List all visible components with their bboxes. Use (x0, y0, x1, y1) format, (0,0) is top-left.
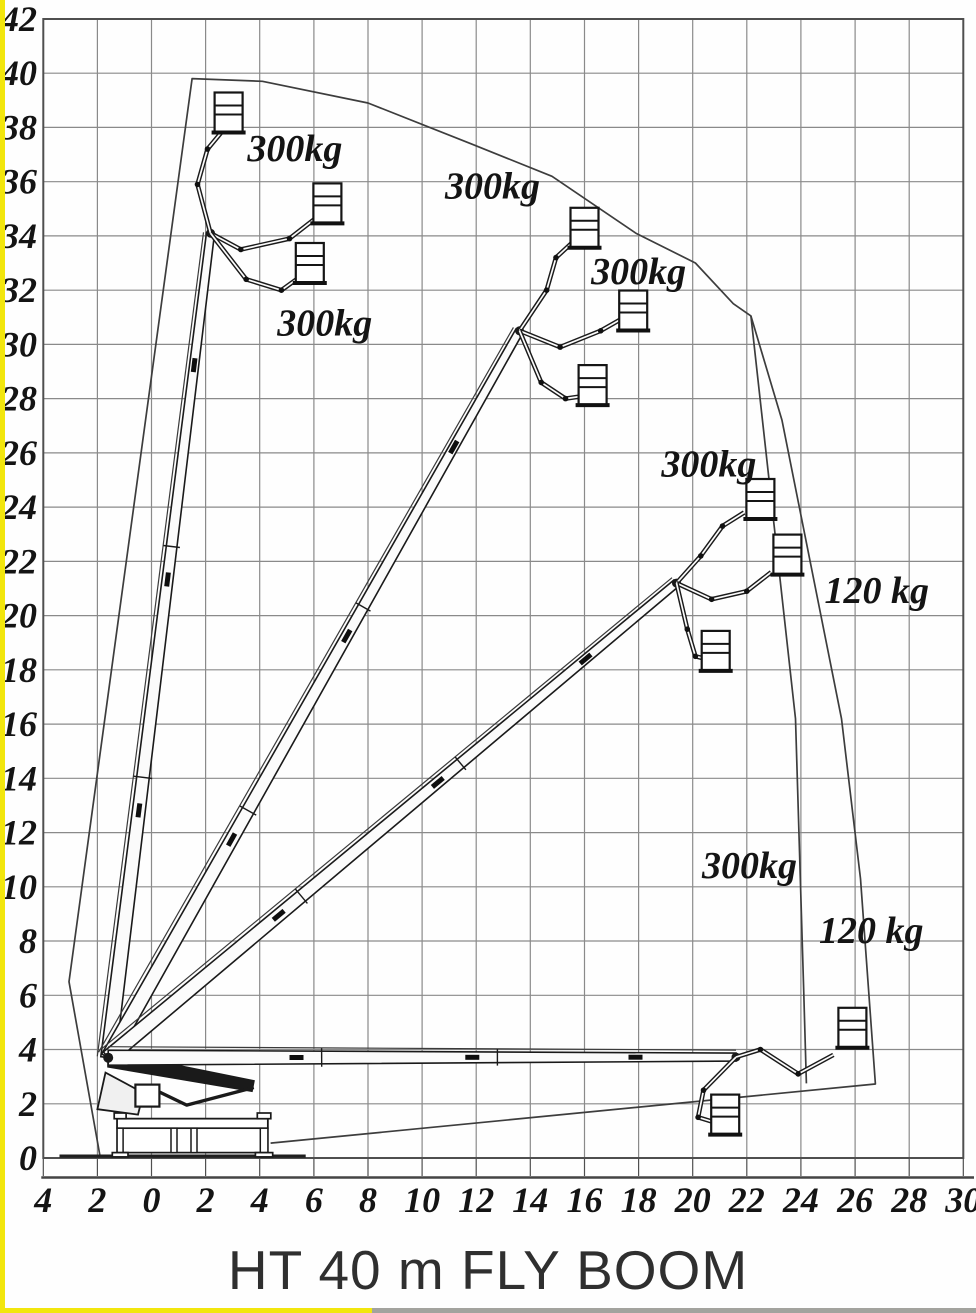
load-capacity-label: 300kg (276, 303, 372, 345)
y-axis-label: 18 (1, 650, 37, 690)
stowed-basket (135, 1085, 159, 1107)
platform-basket (619, 291, 647, 331)
jib-elbow-joint (709, 597, 715, 603)
x-axis-label: 22 (728, 1180, 765, 1220)
stowed-fly-jib (150, 1088, 254, 1106)
y-axis-label: 36 (0, 162, 37, 202)
y-axis-label: 0 (19, 1138, 37, 1178)
load-capacity-label: 300kg (590, 251, 686, 293)
page-edge-bottom-gray-strip (372, 1308, 976, 1313)
outrigger-post (171, 1128, 177, 1152)
telescopic-boom (103, 580, 679, 1063)
load-capacity-label: 120 kg (824, 570, 929, 612)
page-edge-bottom-yellow-strip (0, 1308, 372, 1313)
y-axis-label: 2 (18, 1084, 37, 1124)
outrigger-foot (112, 1153, 128, 1157)
outrigger-post (117, 1128, 123, 1152)
jib-elbow-joint (544, 287, 550, 293)
jib-elbow-joint (553, 255, 559, 261)
y-axis-label: 26 (0, 433, 37, 473)
x-axis-label: 28 (890, 1180, 927, 1220)
x-axis-label: 4 (33, 1180, 52, 1220)
y-axis-label: 40 (0, 53, 37, 93)
x-axis-label: 18 (621, 1180, 657, 1220)
y-axis-label: 42 (0, 0, 37, 39)
reach-diagram-svg: 300kg300kg300kg300kg300kg120 kg300kg120 … (0, 0, 976, 1313)
jib-elbow-joint (758, 1047, 764, 1053)
jib-elbow-joint (557, 344, 563, 350)
x-axis-label: 30 (944, 1180, 976, 1220)
diagram-title: HT 40 m FLY BOOM (0, 1238, 976, 1302)
outrigger-foot (255, 1153, 272, 1157)
y-axis-label: 14 (1, 758, 37, 798)
platform-basket (296, 243, 324, 283)
x-axis-label: 26 (836, 1180, 873, 1220)
outrigger-cap (257, 1113, 271, 1119)
x-axis-label: 6 (305, 1180, 323, 1220)
x-axis-label: 4 (250, 1180, 269, 1220)
jib-elbow-joint (205, 146, 211, 152)
x-axis-label: 14 (512, 1180, 548, 1220)
jib-elbow-joint (720, 523, 726, 529)
telescope-guide-line (101, 578, 672, 1049)
x-axis-label: 12 (458, 1180, 494, 1220)
telescope-guide-line (99, 327, 514, 1052)
jib-elbow-joint (795, 1071, 801, 1077)
platform-basket (773, 535, 801, 575)
jib-elbow-joint (563, 396, 569, 402)
fly-jib-inner (520, 320, 620, 347)
x-axis-label: 0 (143, 1180, 161, 1220)
page-edge-left-strip (0, 0, 5, 1313)
boom-horizontal (108, 1008, 869, 1135)
load-capacity-label: 120 kg (819, 910, 924, 952)
jib-elbow-joint (279, 287, 285, 293)
jib-elbow-joint (195, 182, 201, 188)
y-axis-label: 6 (19, 975, 37, 1015)
boom-section-mark (193, 358, 195, 372)
jib-elbow-joint (744, 588, 750, 594)
x-axis-label: 2 (87, 1180, 106, 1220)
platform-basket (313, 183, 341, 223)
jib-elbow-joint (238, 247, 244, 253)
chassis-top-rail (117, 1119, 268, 1129)
outrigger-post (260, 1128, 268, 1152)
x-axis-label: 16 (567, 1180, 603, 1220)
jib-elbow-joint (243, 277, 249, 283)
boom-section-mark (167, 573, 169, 587)
y-axis-label: 16 (1, 704, 37, 744)
boom-pivot (103, 1053, 113, 1063)
jib-elbow-joint (695, 1115, 701, 1121)
y-axis-label: 10 (1, 867, 37, 907)
jib-elbow-joint (538, 380, 544, 386)
fly-jib-inner (677, 513, 745, 584)
y-axis-label: 28 (0, 379, 37, 419)
platform-basket (215, 93, 243, 133)
y-axis-label: 34 (0, 216, 37, 256)
load-capacity-label: 300kg (701, 845, 797, 887)
y-axis-label: 8 (19, 921, 37, 961)
outrigger-cap (114, 1113, 126, 1119)
jib-elbow-joint (287, 236, 293, 242)
fly-jib (677, 572, 772, 599)
jib-elbow-joint (693, 654, 699, 660)
y-axis-label: 24 (0, 487, 37, 527)
platform-basket (571, 208, 599, 248)
y-axis-label: 38 (0, 107, 37, 147)
x-axis-label: 10 (404, 1180, 440, 1220)
x-axis-label: 20 (674, 1180, 711, 1220)
y-axis-label: 32 (0, 270, 37, 310)
y-axis-label: 12 (1, 813, 37, 853)
platform-basket (711, 1095, 739, 1135)
jib-elbow-joint (598, 328, 604, 334)
reach-chart-page: 300kg300kg300kg300kg300kg120 kg300kg120 … (0, 0, 976, 1313)
y-axis-label: 20 (0, 596, 37, 636)
platform-basket (702, 631, 730, 671)
jib-elbow-joint (698, 553, 704, 559)
telescopic-boom (101, 233, 215, 1059)
telescopic-boom (102, 329, 523, 1061)
y-axis-label: 22 (0, 541, 37, 581)
load-capacity-label: 300kg (444, 166, 540, 208)
platform-basket (579, 365, 607, 405)
boom-mid (101, 479, 804, 1063)
load-capacity-label: 300kg (660, 444, 756, 486)
boom-steep (99, 208, 651, 1062)
jib-elbow-joint (685, 626, 691, 632)
outrigger-post (191, 1128, 197, 1152)
x-axis-label: 24 (782, 1180, 819, 1220)
boom-vertical (97, 93, 344, 1059)
y-axis-label: 30 (0, 324, 37, 364)
x-axis-label: 2 (196, 1180, 215, 1220)
load-labels: 300kg300kg300kg300kg300kg120 kg300kg120 … (246, 128, 929, 952)
y-axis-label: 4 (18, 1030, 37, 1070)
inner-boundary-300kg (751, 316, 807, 1084)
platform-basket (838, 1008, 866, 1048)
load-capacity-label: 300kg (246, 128, 342, 170)
jib-elbow-joint (701, 1087, 707, 1093)
boom-section-mark (138, 803, 140, 817)
x-axis-label: 8 (359, 1180, 377, 1220)
